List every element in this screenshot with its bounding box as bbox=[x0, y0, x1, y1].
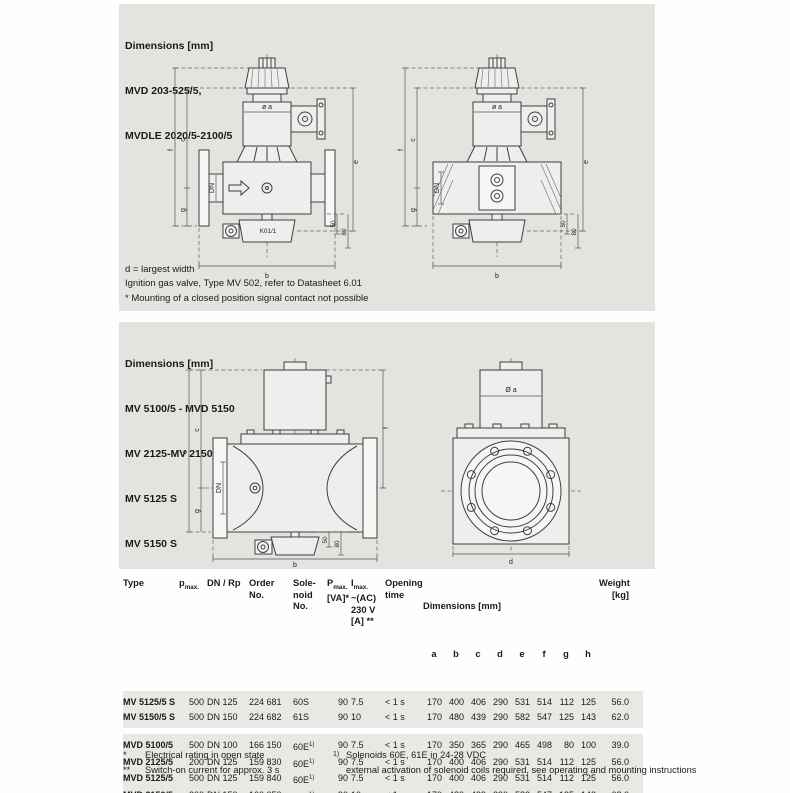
dim-label-dn: DN bbox=[434, 183, 441, 193]
dim-letter: a bbox=[423, 649, 445, 661]
cell-opening-time: < 1 s bbox=[385, 788, 423, 793]
table-header: Type pmax. DN / Rp OrderNo. Sole-noidNo.… bbox=[123, 578, 643, 683]
mvdle-threaded-valve-drawing: f c g ø a bbox=[397, 52, 602, 292]
footnote-marker: 1) bbox=[333, 748, 346, 763]
col-header-weight: Weight[kg] bbox=[599, 578, 629, 601]
cell-pmax: 500 bbox=[179, 710, 207, 725]
cell-dim-e: 582 bbox=[511, 788, 533, 793]
col-header-pmax-va: Pmax.[VA]* bbox=[327, 578, 351, 605]
dim-label-f: f bbox=[383, 427, 390, 429]
footnote-text: Switch-on current for approx. 3 s bbox=[145, 763, 279, 778]
cell-imax: 7.5 bbox=[351, 695, 385, 710]
footnote-column-right: 1)Solenoids 60E, 61E in 24-28 VDC extern… bbox=[333, 748, 696, 777]
cell-dim-d: 290 bbox=[489, 710, 511, 725]
mv5100-valve-front-drawing: Ø a d bbox=[411, 356, 611, 568]
dim-label-f: f bbox=[398, 149, 405, 151]
cell-dim-f: 547 bbox=[533, 710, 555, 725]
dim-letter: h bbox=[577, 649, 599, 661]
mvd-flanged-valve-drawing: f c g ø a bbox=[167, 52, 372, 292]
col-header-type: Type bbox=[123, 578, 179, 590]
footnote-text: Electrical rating in open state bbox=[145, 748, 264, 763]
footnote-column-left: *Electrical rating in open state **Switc… bbox=[123, 748, 333, 777]
table-body: MV 5125/5 S500DN 125224 68160S907.5< 1 s… bbox=[123, 691, 643, 793]
cell-pmax-va: 90 bbox=[327, 695, 351, 710]
col-header-solenoid: Sole-noidNo. bbox=[293, 578, 327, 613]
dim-label-c: c bbox=[194, 428, 201, 432]
note-line: * Mounting of a closed position signal c… bbox=[125, 292, 368, 307]
dim-label-f: f bbox=[168, 149, 175, 151]
dim-label-50: 50 bbox=[330, 220, 337, 228]
cell-dim-c: 439 bbox=[467, 788, 489, 793]
dim-letter: d bbox=[489, 649, 511, 661]
cell-pmax: 500 bbox=[179, 695, 207, 710]
dim-letter: g bbox=[555, 649, 577, 661]
cell-order-no: 224 682 bbox=[249, 710, 293, 725]
cell-order-no: 160 050 bbox=[249, 788, 293, 793]
cell-pmax-va: 90 bbox=[327, 710, 351, 725]
table-row: MV 5150/5 S500DN 150224 68261S9010< 1 s1… bbox=[123, 710, 643, 725]
dim-label-dia-a-cap: Ø a bbox=[505, 387, 516, 394]
cell-dim-b: 480 bbox=[445, 788, 467, 793]
cell-dim-e: 531 bbox=[511, 695, 533, 710]
dim-label-dn: DN bbox=[209, 183, 216, 193]
note-line: d = largest width bbox=[125, 263, 368, 278]
top-panel-notes: d = largest width Ignition gas valve, Ty… bbox=[125, 263, 368, 307]
cell-pmax: 200 bbox=[179, 788, 207, 793]
cell-dim-h: 125 bbox=[577, 695, 599, 710]
dim-label-b: b bbox=[495, 273, 499, 280]
dim-label-dn: DN bbox=[216, 483, 223, 493]
cell-dim-c: 406 bbox=[467, 695, 489, 710]
cell-dim-h: 143 bbox=[577, 710, 599, 725]
cell-dim-g: 125 bbox=[555, 710, 577, 725]
cell-solenoid-no: 60S bbox=[293, 695, 327, 710]
dim-label-80: 80 bbox=[334, 540, 341, 548]
dim-letter: f bbox=[533, 649, 555, 661]
footnote-text: Solenoids 60E, 61E in 24-28 VDC bbox=[346, 748, 486, 763]
dim-letter: c bbox=[467, 649, 489, 661]
table-row: MV 5125/5 S500DN 125224 68160S907.5< 1 s… bbox=[123, 695, 643, 710]
cell-imax: 10 bbox=[351, 710, 385, 725]
footnote-text: external activation of solenoid coils re… bbox=[346, 763, 696, 778]
col-header-dimensions: Dimensions [mm] a b c d e f g h bbox=[423, 578, 599, 683]
datasheet-page: Dimensions [mm] MVD 203-525/5, MVDLE 202… bbox=[0, 0, 790, 793]
cell-dim-d: 290 bbox=[489, 695, 511, 710]
cell-dim-c: 439 bbox=[467, 710, 489, 725]
dim-label-e: e bbox=[353, 160, 360, 164]
dim-label-g: g bbox=[180, 208, 187, 212]
dim-label-g: g bbox=[410, 208, 417, 212]
dim-label-c: c bbox=[180, 138, 187, 142]
top-dimensions-panel: Dimensions [mm] MVD 203-525/5, MVDLE 202… bbox=[119, 4, 655, 311]
dim-letter: b bbox=[445, 649, 467, 661]
cell-opening-time: < 1 s bbox=[385, 695, 423, 710]
cell-dim-g: 125 bbox=[555, 788, 577, 793]
cell-dim-e: 582 bbox=[511, 710, 533, 725]
cell-dim-d: 290 bbox=[489, 788, 511, 793]
cell-dim-b: 400 bbox=[445, 695, 467, 710]
col-header-opening-time: Openingtime bbox=[385, 578, 423, 601]
cell-solenoid-no: 61S bbox=[293, 710, 327, 725]
table-group: MV 5125/5 S500DN 125224 68160S907.5< 1 s… bbox=[123, 691, 643, 728]
page-footnotes: *Electrical rating in open state **Switc… bbox=[123, 748, 723, 777]
ignition-valve-label: K01/1 bbox=[260, 228, 277, 235]
col-header-order: OrderNo. bbox=[249, 578, 293, 601]
note-line: Ignition gas valve, Type MV 502, refer t… bbox=[125, 277, 368, 292]
table-row: MVD 2150/5200DN 150160 05061E1)9010< 1 s… bbox=[123, 788, 643, 793]
cell-imax: 10 bbox=[351, 788, 385, 793]
dim-label-e: e bbox=[182, 450, 189, 454]
cell-dn-rp: DN 150 bbox=[207, 710, 249, 725]
col-header-imax: Imax.~(AC)230 V[A] ** bbox=[351, 578, 385, 628]
cell-weight: 62.0 bbox=[599, 710, 629, 725]
cell-dn-rp: DN 125 bbox=[207, 695, 249, 710]
dim-label-80: 80 bbox=[341, 228, 348, 236]
cell-type: MVD 2150/5 bbox=[123, 788, 179, 793]
cell-dim-a: 170 bbox=[423, 695, 445, 710]
dim-label-dia-a: ø a bbox=[262, 104, 272, 111]
dim-label-c: c bbox=[410, 138, 417, 142]
footnote-marker: * bbox=[123, 748, 145, 763]
dim-label-b: b bbox=[293, 562, 297, 568]
dim-label-dia-a: ø a bbox=[492, 104, 502, 111]
cell-type: MV 5125/5 S bbox=[123, 695, 179, 710]
cell-dim-b: 480 bbox=[445, 710, 467, 725]
dimension-letter-row: a b c d e f g h bbox=[423, 649, 599, 661]
col-header-pmax: pmax. bbox=[179, 578, 207, 593]
dim-label-80: 80 bbox=[571, 228, 578, 236]
mid-dimensions-panel: Dimensions [mm] MV 5100/5 - MVD 5150 MV … bbox=[119, 322, 655, 569]
footnote-marker: ** bbox=[123, 763, 145, 778]
cell-dim-f: 514 bbox=[533, 695, 555, 710]
dim-label-d: d bbox=[509, 559, 513, 566]
mv5100-valve-side-drawing: e c g DN bbox=[177, 356, 402, 568]
cell-weight: 62.0 bbox=[599, 788, 629, 793]
cell-type: MV 5150/5 S bbox=[123, 710, 179, 725]
cell-pmax-va: 90 bbox=[327, 788, 351, 793]
cell-dim-h: 143 bbox=[577, 788, 599, 793]
cell-dim-a: 170 bbox=[423, 710, 445, 725]
cell-opening-time: < 1 s bbox=[385, 710, 423, 725]
col-header-dn-rp: DN / Rp bbox=[207, 578, 249, 590]
cell-weight: 56.0 bbox=[599, 695, 629, 710]
cell-solenoid-no: 61E1) bbox=[293, 788, 327, 793]
dim-label-g: g bbox=[194, 509, 201, 513]
cell-dim-a: 170 bbox=[423, 788, 445, 793]
cell-dim-g: 112 bbox=[555, 695, 577, 710]
dim-label-e: e bbox=[583, 160, 590, 164]
cell-dn-rp: DN 150 bbox=[207, 788, 249, 793]
dim-label-50: 50 bbox=[322, 536, 329, 544]
cell-dim-f: 547 bbox=[533, 788, 555, 793]
cell-order-no: 224 681 bbox=[249, 695, 293, 710]
dim-letter: e bbox=[511, 649, 533, 661]
